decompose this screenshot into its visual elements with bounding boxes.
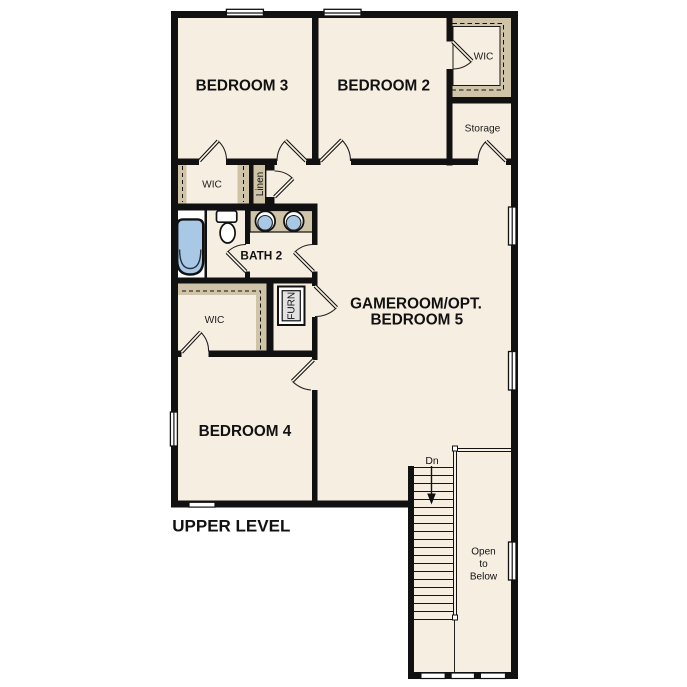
svg-text:Storage: Storage [465,124,501,135]
svg-text:Dn: Dn [425,456,439,467]
svg-text:to: to [479,559,488,570]
svg-text:Open: Open [471,547,495,558]
svg-text:BEDROOM 5: BEDROOM 5 [370,312,463,329]
svg-text:UPPER LEVEL: UPPER LEVEL [172,517,290,536]
svg-text:FURN: FURN [287,292,298,320]
svg-text:Linen: Linen [255,172,266,196]
svg-text:BEDROOM 3: BEDROOM 3 [196,78,289,95]
svg-text:BEDROOM 2: BEDROOM 2 [337,78,430,95]
svg-text:WIC: WIC [205,315,225,326]
svg-text:Below: Below [470,572,498,583]
svg-text:BEDROOM 4: BEDROOM 4 [199,423,292,440]
svg-text:WIC: WIC [474,52,494,63]
svg-text:GAMEROOM/OPT.: GAMEROOM/OPT. [350,295,482,312]
svg-text:BATH 2: BATH 2 [240,248,282,262]
svg-text:WIC: WIC [202,180,222,191]
